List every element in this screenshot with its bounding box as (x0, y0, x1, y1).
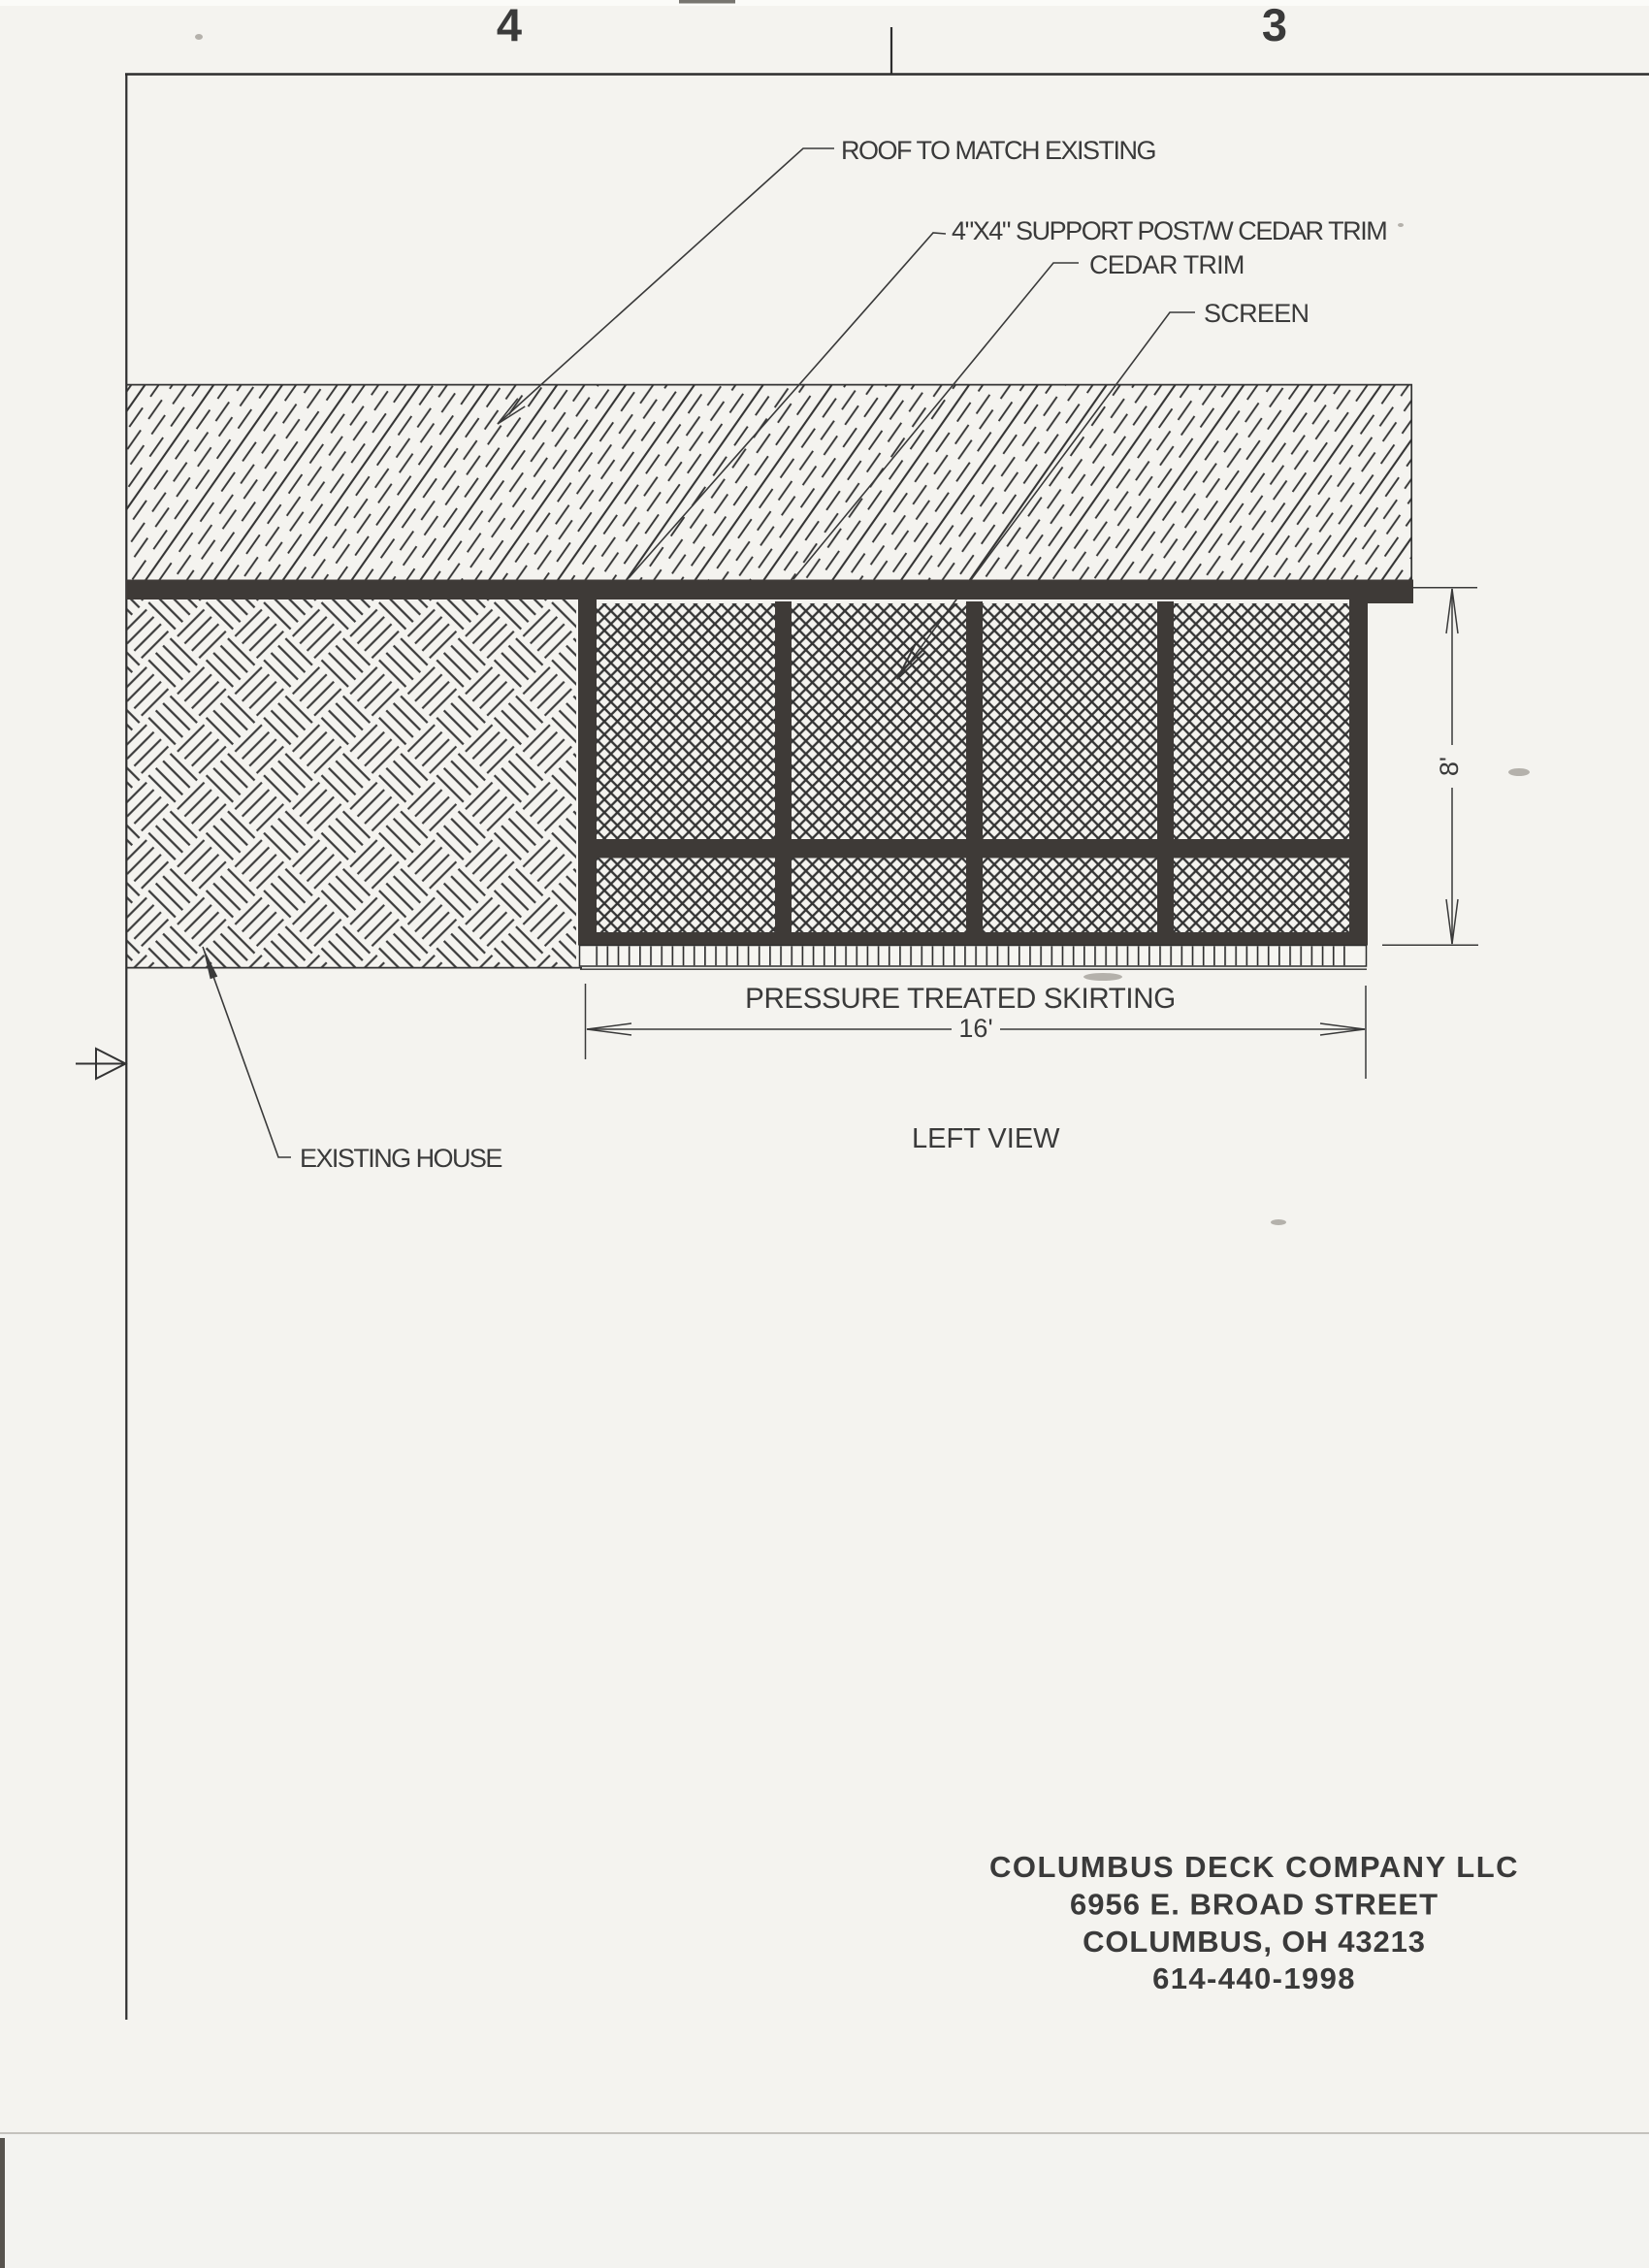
svg-text:ROOF TO MATCH EXISTING: ROOF TO MATCH EXISTING (841, 136, 1155, 165)
svg-text:8': 8' (1435, 757, 1464, 776)
svg-text:EXISTING HOUSE: EXISTING HOUSE (300, 1144, 501, 1173)
svg-text:16': 16' (958, 1014, 992, 1043)
svg-text:SCREEN: SCREEN (1204, 299, 1309, 328)
svg-text:6956 E. BROAD STREET: 6956 E. BROAD STREET (1070, 1888, 1439, 1922)
svg-text:PRESSURE TREATED SKIRTING: PRESSURE TREATED SKIRTING (745, 983, 1176, 1015)
svg-text:4"X4" SUPPORT POST/W CEDAR TRI: 4"X4" SUPPORT POST/W CEDAR TRIM (952, 216, 1386, 245)
svg-text:COLUMBUS, OH 43213: COLUMBUS, OH 43213 (1083, 1925, 1426, 1959)
svg-text:COLUMBUS DECK COMPANY LLC: COLUMBUS DECK COMPANY LLC (989, 1850, 1519, 1884)
svg-text:4: 4 (497, 0, 522, 50)
svg-text:614-440-1998: 614-440-1998 (1152, 1961, 1356, 1995)
svg-text:LEFT VIEW: LEFT VIEW (912, 1123, 1060, 1154)
svg-text:CEDAR TRIM: CEDAR TRIM (1089, 250, 1245, 279)
svg-text:3: 3 (1262, 0, 1287, 50)
